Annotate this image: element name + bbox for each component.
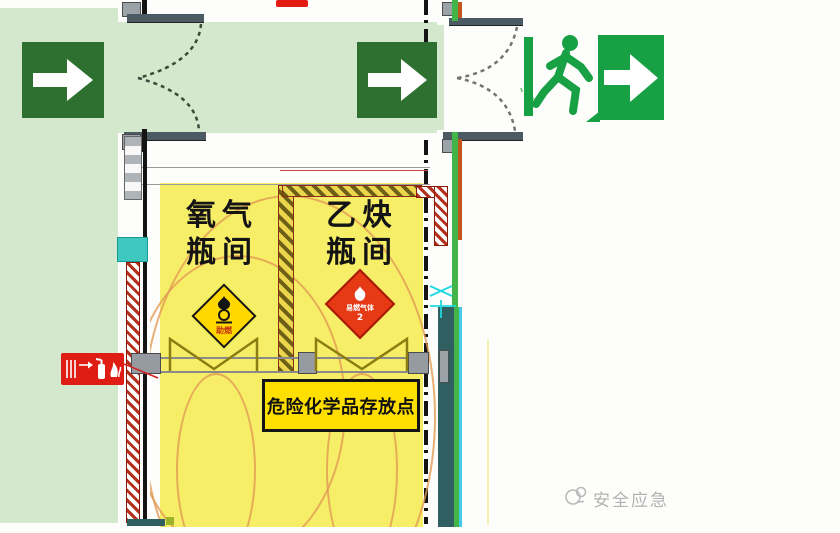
- exit-sign-right: [598, 35, 664, 120]
- helmet-logo-icon: [563, 485, 589, 507]
- exit-sign-left: [22, 42, 104, 118]
- watermark-text: 安全应急: [593, 486, 669, 511]
- door-swing-dashed-icon: [138, 78, 199, 132]
- oxidizer-placard-label: 助燃: [216, 325, 232, 336]
- fire-extinguisher-icon: [61, 353, 124, 385]
- flame-icon: [351, 286, 369, 303]
- evacuation-plan-canvas: 氧气 瓶间 乙炔 瓶间 助燃 易燃气体 2 危险化学品存放点: [0, 0, 840, 533]
- flammable-gas-class-number: 2: [357, 313, 363, 323]
- exit-door-bar: [524, 37, 533, 116]
- room-label-line: 乙炔: [314, 197, 410, 234]
- flammable-gas-label: 易燃气体: [346, 303, 374, 313]
- exit-arrow-right-icon: [604, 54, 658, 102]
- door-swing-dashed-icon: [457, 78, 515, 131]
- door-swing-dashed-icon: [457, 27, 517, 78]
- double-door-icon: [316, 339, 407, 371]
- valve-symbol-icon: [430, 286, 456, 318]
- leader-line: [124, 364, 158, 378]
- exit-arrow-right-icon: [368, 59, 427, 101]
- flame-over-circle-icon: [212, 296, 236, 324]
- exit-arrow-right-icon: [33, 59, 93, 101]
- room-label-oxygen: 氧气 瓶间: [170, 197, 274, 271]
- room-label-acetylene: 乙炔 瓶间: [314, 197, 410, 271]
- room-label-line: 氧气: [170, 197, 274, 234]
- double-door-icon: [170, 339, 257, 371]
- exit-sign-middle: [357, 42, 437, 118]
- fire-equipment-sign: [61, 353, 124, 385]
- storage-point-label-box: 危险化学品存放点: [262, 379, 420, 432]
- storage-point-label: 危险化学品存放点: [267, 393, 415, 419]
- room-label-line: 瓶间: [170, 234, 274, 271]
- exit-running-man-icon: [533, 34, 595, 120]
- room-label-line: 瓶间: [314, 234, 410, 271]
- door-swing-dashed-icon: [138, 24, 201, 78]
